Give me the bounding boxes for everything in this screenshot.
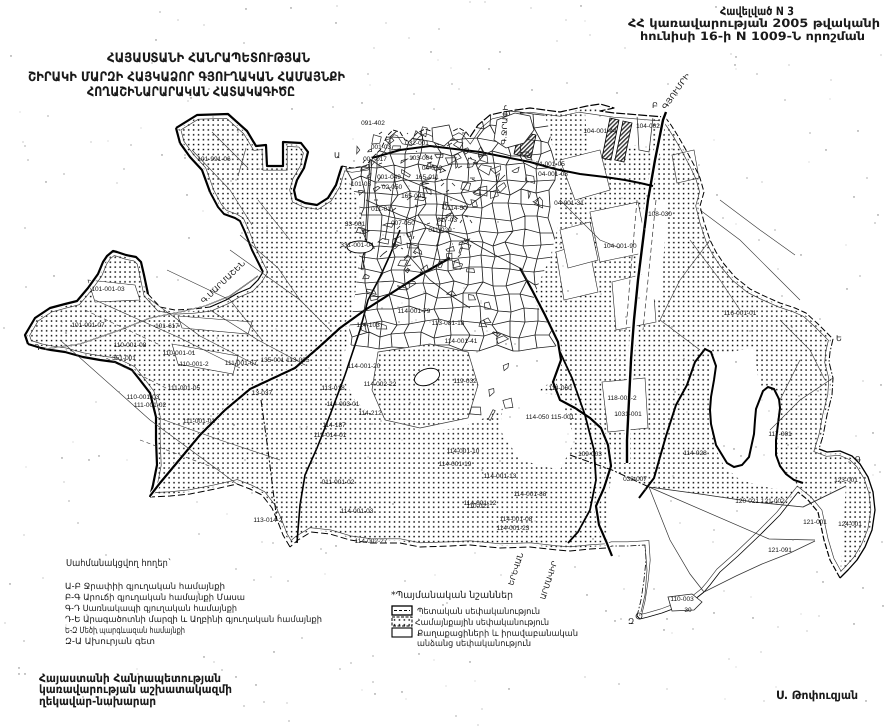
svg-text:114-001-10: 114-001-10 (447, 448, 480, 455)
svg-text:111-001-07: 111-001-07 (225, 360, 258, 367)
svg-text:13-037: 13-037 (252, 390, 273, 397)
svg-text:121-001: 121-001 (803, 519, 827, 526)
svg-text:111-001-02: 111-001-02 (134, 402, 167, 409)
svg-text:101-991-06: 101-991-06 (197, 156, 231, 163)
svg-text:110-003: 110-003 (670, 596, 694, 603)
svg-text:101-617: 101-617 (155, 323, 179, 330)
svg-text:001-03: 001-03 (371, 144, 392, 151)
svg-text:114-001-88: 114-001-88 (514, 491, 547, 498)
svg-text:103-004: 103-004 (409, 155, 433, 162)
svg-text:33-001: 33-001 (345, 221, 366, 228)
svg-text:017-03: 017-03 (437, 217, 458, 224)
svg-text:111-001-05: 111-001-05 (168, 385, 201, 392)
svg-text:114-001-20: 114-001-20 (348, 363, 381, 370)
svg-text:1031-001: 1031-001 (614, 411, 642, 418)
svg-text:114-001-19: 114-001-19 (439, 461, 472, 468)
svg-text:04-012: 04-012 (422, 165, 443, 172)
svg-text:124-001: 124-001 (838, 521, 862, 528)
svg-text:114-001-08: 114-001-08 (500, 516, 533, 523)
svg-text:110-001-01: 110-001-01 (163, 350, 196, 357)
svg-text:114-50: 114-50 (447, 205, 467, 212)
svg-text:104-001-44: 104-001-44 (583, 128, 617, 135)
svg-text:114-001-79: 114-001-79 (398, 308, 431, 315)
svg-text:101-001-07: 101-001-07 (71, 322, 105, 329)
svg-text:04-001-31: 04-001-31 (554, 200, 584, 207)
svg-text:101-001-03: 101-001-03 (91, 286, 125, 293)
svg-text:113-014-2: 113-014-2 (253, 517, 283, 524)
svg-text:114-003-01: 114-003-01 (327, 401, 360, 408)
svg-text:114-002-22: 114-002-22 (364, 381, 397, 388)
svg-text:108-030: 108-030 (648, 211, 672, 218)
svg-text:331-001-04: 331-001-04 (340, 242, 374, 249)
svg-text:114-050 115-001: 114-050 115-001 (526, 414, 575, 421)
svg-text:351-001: 351-001 (112, 355, 136, 362)
svg-text:117-001: 117-001 (768, 431, 792, 438)
svg-text:113-018: 113-018 (321, 385, 345, 392)
svg-text:114-212: 114-212 (358, 410, 382, 417)
svg-text:111-001-01: 111-001-01 (183, 418, 216, 425)
svg-text:104-001-90: 104-001-90 (603, 243, 637, 250)
svg-text:114-028: 114-028 (683, 450, 707, 457)
svg-text:001-017: 001-017 (363, 156, 387, 163)
svg-text:02-050: 02-050 (382, 184, 403, 191)
svg-text:033-007: 033-007 (623, 476, 647, 483)
svg-text:114-001-41: 114-001-41 (445, 338, 478, 345)
svg-text:04-001-05: 04-001-05 (535, 161, 565, 168)
svg-text:114-187: 114-187 (322, 422, 346, 429)
svg-text:011-01: 011-01 (371, 206, 391, 213)
svg-text:114-001-03: 114-001-03 (341, 508, 374, 515)
svg-text:032-001: 032-001 (405, 140, 429, 147)
svg-text:110-001-2: 110-001-2 (179, 361, 209, 368)
svg-text:110-021: 110-021 (466, 503, 490, 510)
svg-text:165-011: 165-011 (415, 174, 439, 181)
svg-text:135-001 113-005: 135-001 113-005 (260, 357, 309, 364)
svg-text:121-091: 121-091 (768, 547, 792, 554)
svg-text:04-001-08: 04-001-08 (538, 171, 568, 178)
svg-text:30: 30 (684, 607, 692, 614)
svg-text:113-014-01: 113-014-01 (314, 432, 347, 439)
svg-text:001-049: 001-049 (377, 174, 401, 181)
svg-text:007-050: 007-050 (391, 220, 415, 227)
svg-text:165-001: 165-001 (401, 193, 425, 200)
svg-text:114-001-13: 114-001-13 (484, 473, 517, 480)
svg-text:114-060: 114-060 (548, 385, 572, 392)
svg-text:114-002-27: 114-002-27 (355, 538, 388, 545)
svg-text:113-081-18: 113-081-18 (432, 320, 465, 327)
svg-text:011-029: 011-029 (428, 227, 452, 234)
svg-text:116-001-01: 116-001-01 (724, 310, 757, 317)
svg-text:119-032: 119-032 (453, 378, 477, 385)
svg-text:091-402: 091-402 (361, 120, 385, 127)
svg-text:118-001-2: 118-001-2 (607, 395, 637, 402)
svg-text:110-001-08: 110-001-08 (114, 342, 147, 349)
svg-text:123-001: 123-001 (834, 477, 858, 484)
svg-text:104-002: 104-002 (636, 123, 660, 130)
svg-text:011-001-02: 011-001-02 (322, 479, 355, 486)
svg-text:110-001-03: 110-001-03 (127, 394, 160, 401)
svg-text:114-103: 114-103 (356, 322, 380, 329)
svg-text:120-021 121-002: 120-021 121-002 (735, 498, 785, 505)
svg-text:109-003: 109-003 (578, 451, 602, 458)
svg-text:101-03: 101-03 (351, 181, 372, 188)
